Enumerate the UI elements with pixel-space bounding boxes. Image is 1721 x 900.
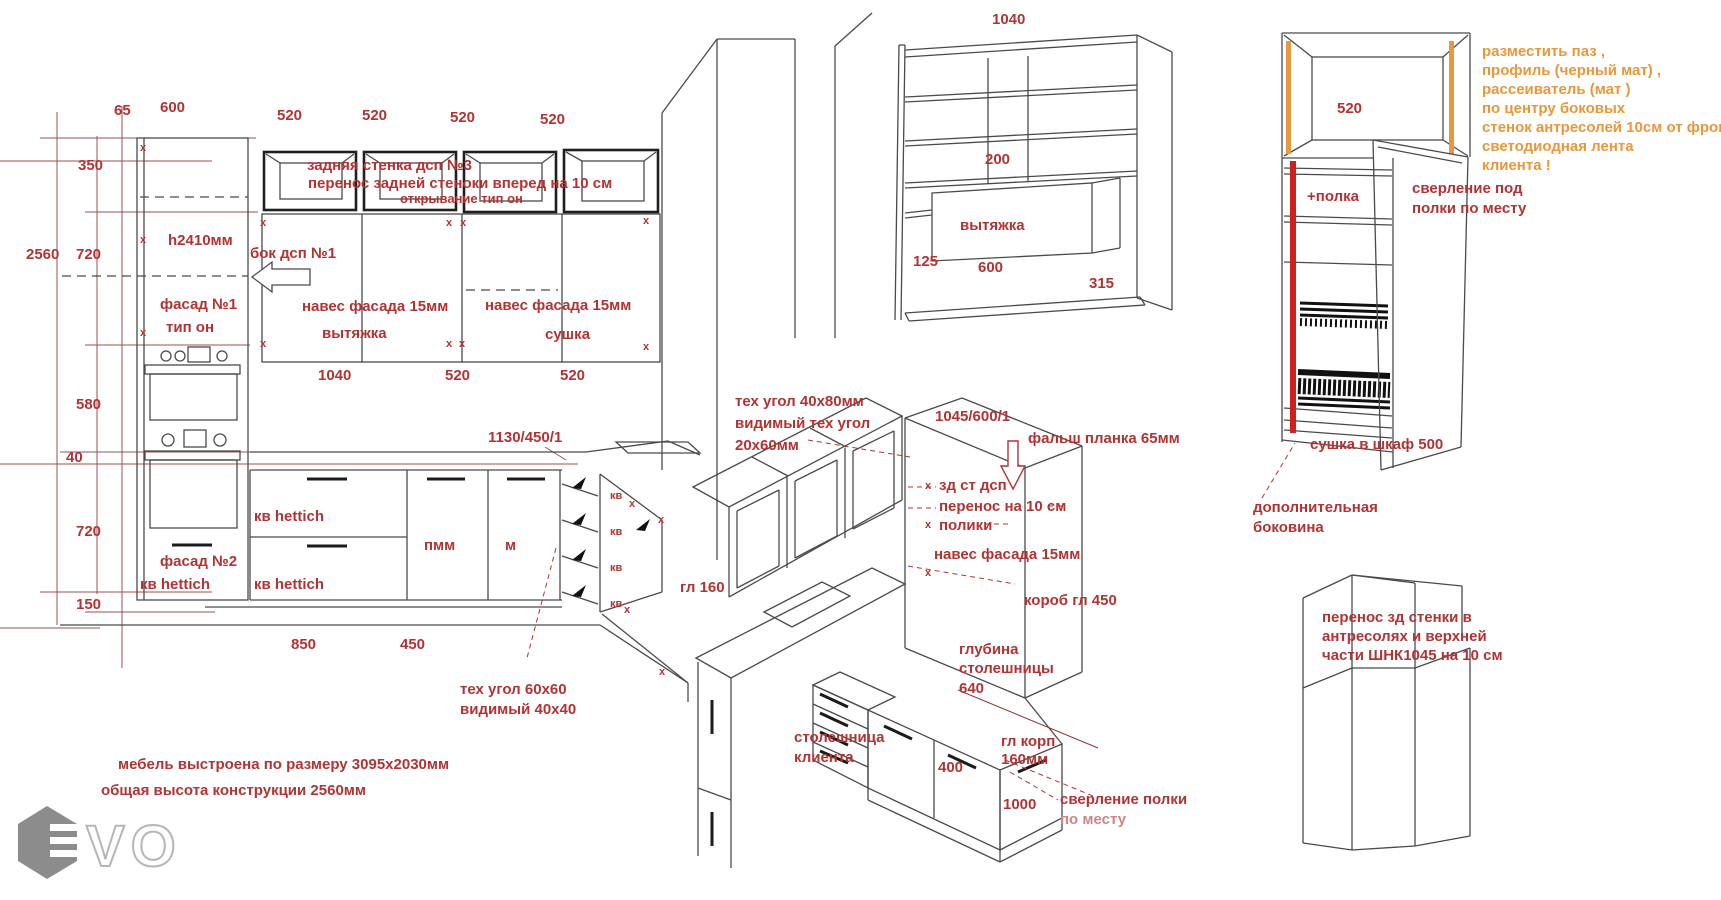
additional-side-strip [1290, 161, 1296, 433]
down-arrow-icon [1001, 441, 1025, 489]
elevation-antresol-row [264, 150, 658, 212]
hob-icon [616, 442, 700, 453]
left-block-arrow-icon [252, 262, 310, 292]
drawing-canvas: VO 6560052052052052035025607205804072015… [0, 0, 1721, 900]
corner-kitchen-3d [693, 398, 1098, 868]
oven-1-icon [145, 347, 240, 420]
elevation-tall-column [62, 138, 248, 600]
handle-arrow-icon [636, 519, 650, 531]
logo-vo-text: VO [86, 814, 182, 879]
handle-arrow-icon [572, 513, 586, 525]
handle-arrow-icon [572, 477, 586, 489]
led-strip-right [1449, 41, 1454, 154]
technical-drawing: VO [0, 0, 1721, 900]
tower-3d [1303, 575, 1470, 850]
elevation-upper-cabinets [252, 214, 660, 362]
dish-rack-icon [1298, 372, 1390, 408]
handle-arrow-icon [572, 549, 586, 561]
room-wall-outline [662, 13, 872, 560]
handle-arrow-icon [572, 585, 586, 597]
dish-rack-icon [1300, 303, 1388, 325]
oven-2-icon [145, 430, 240, 528]
evo-logo: VO [18, 806, 182, 879]
led-strip-left [1286, 41, 1291, 154]
hood-unit-3d [895, 35, 1172, 321]
led-cabinet-front [1262, 33, 1470, 498]
